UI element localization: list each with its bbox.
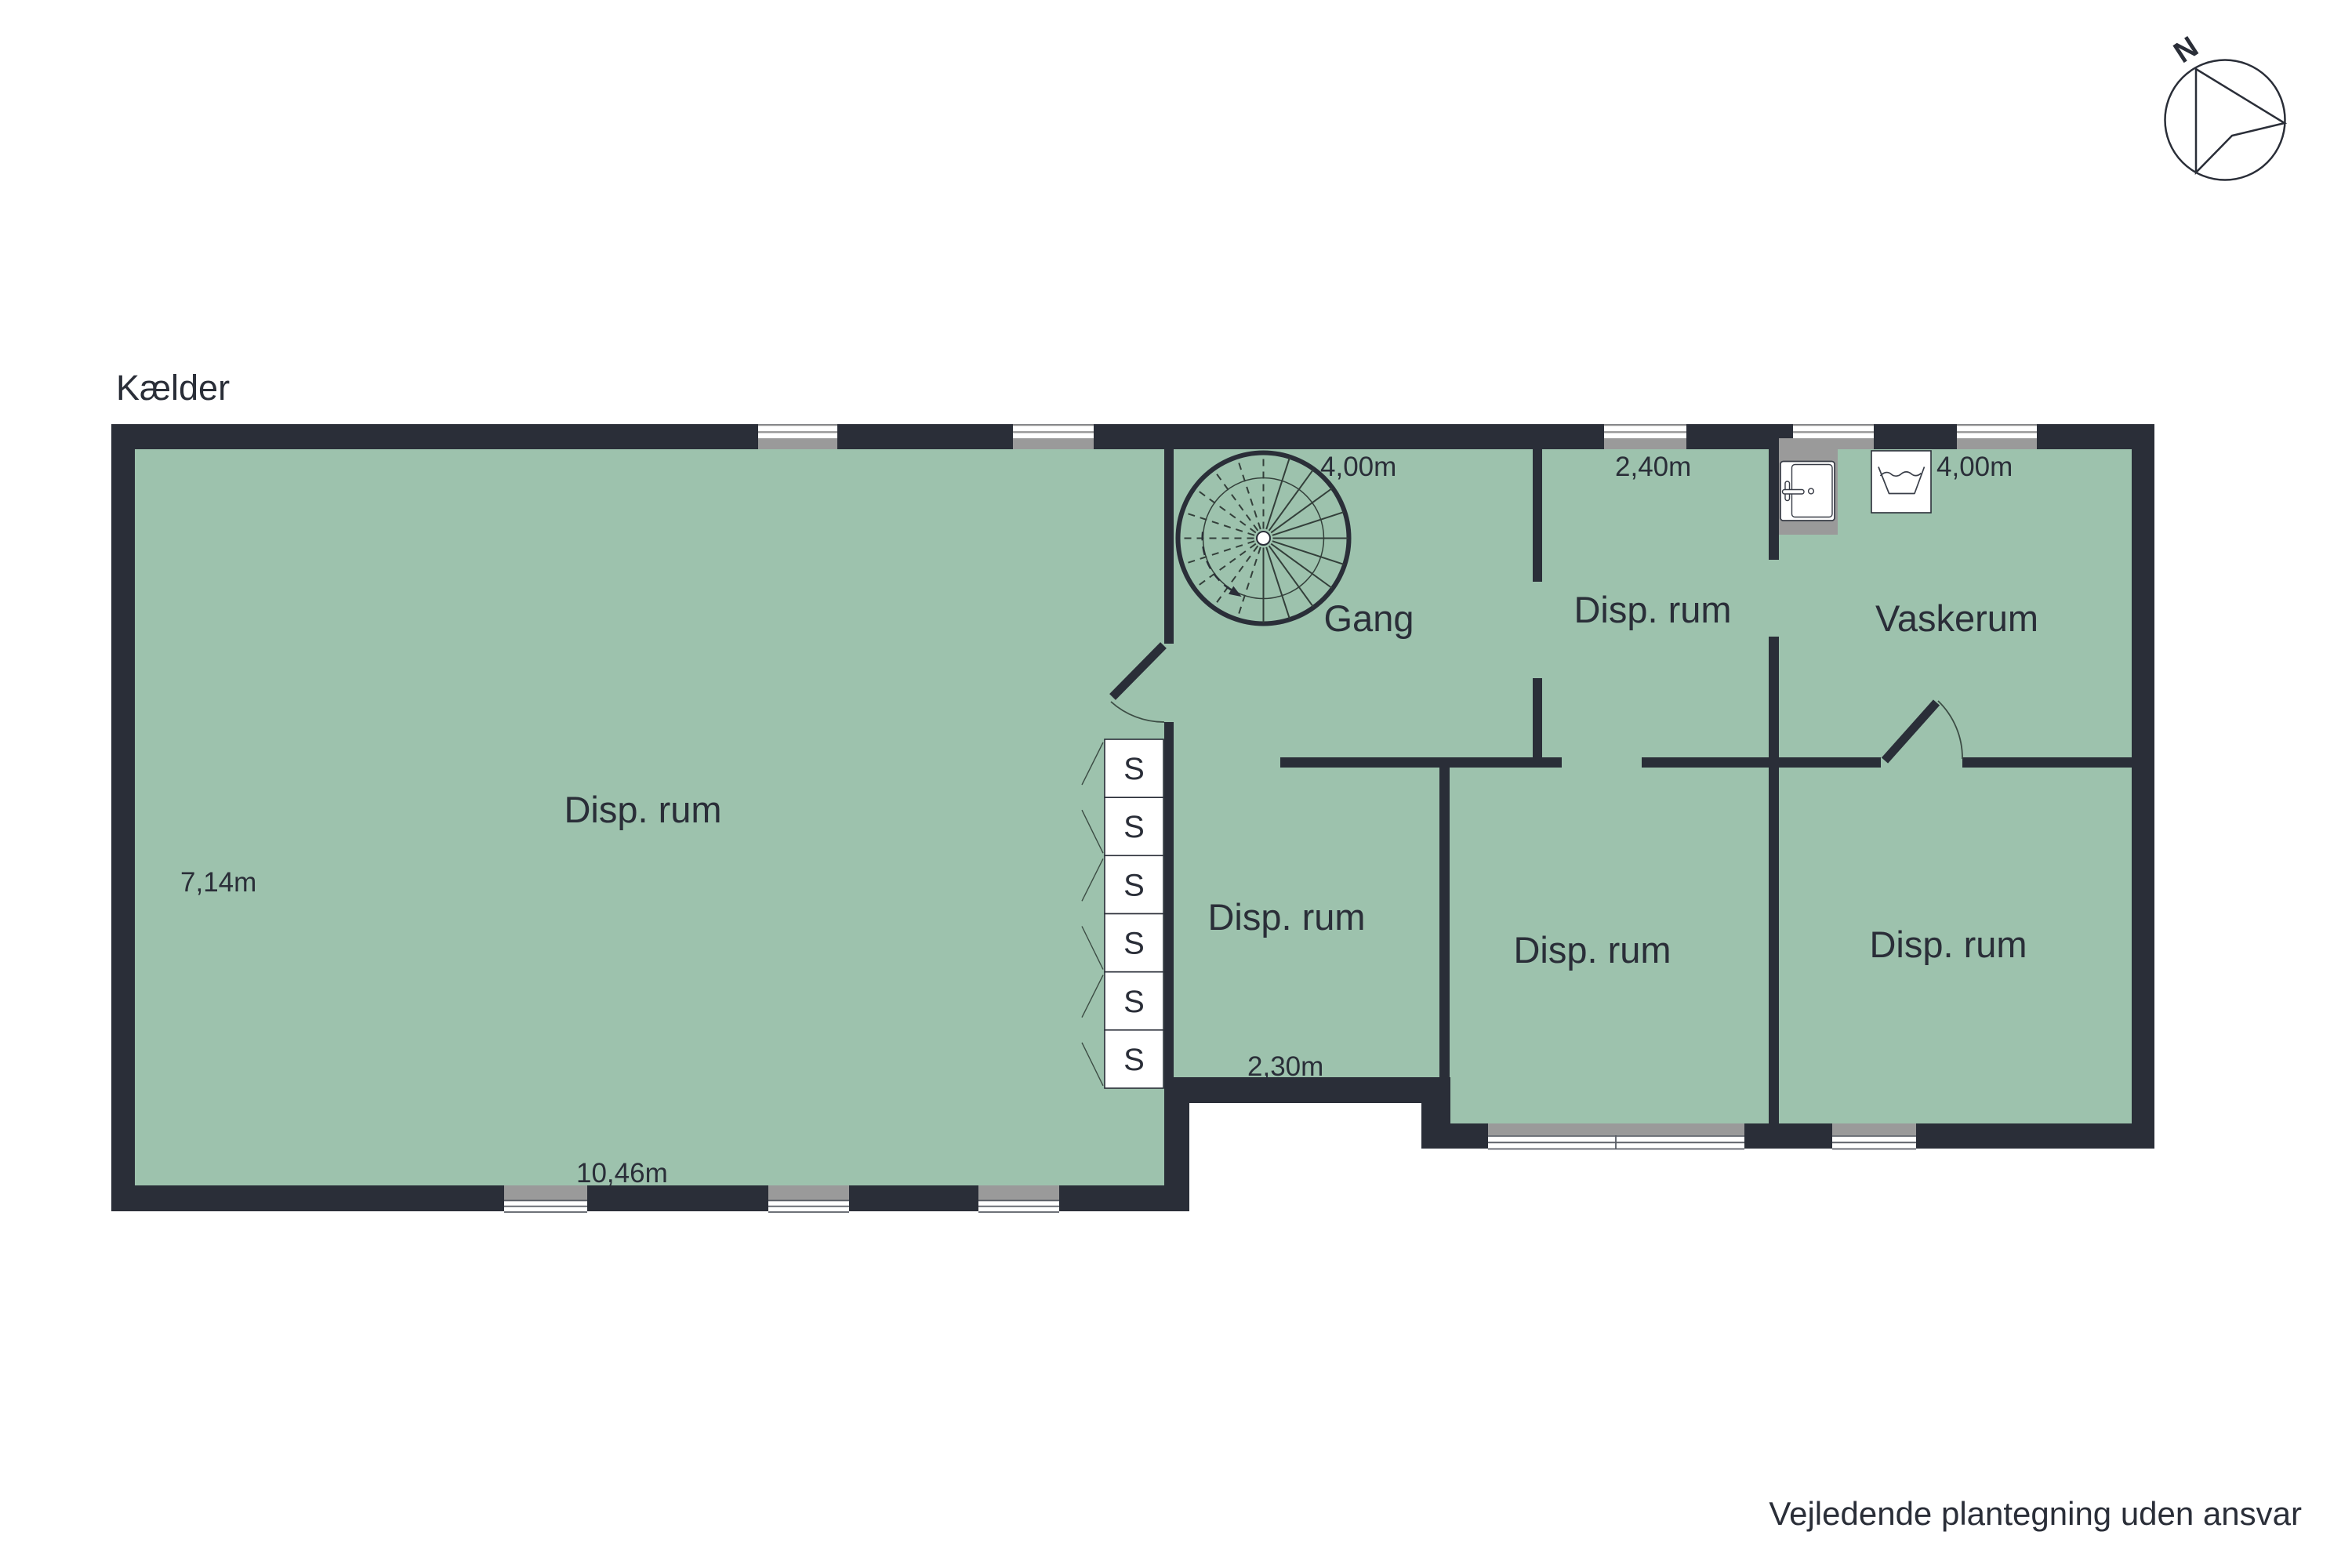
svg-text:2,40m: 2,40m xyxy=(1615,452,1691,482)
svg-text:7,14m: 7,14m xyxy=(180,867,256,898)
svg-text:Kælder: Kælder xyxy=(116,368,230,408)
svg-text:Disp. rum: Disp. rum xyxy=(1869,924,2027,965)
svg-text:S: S xyxy=(1123,752,1145,786)
svg-text:S: S xyxy=(1123,810,1145,844)
svg-text:Vejledende plantegning uden an: Vejledende plantegning uden ansvar xyxy=(1769,1495,2302,1532)
svg-text:S: S xyxy=(1123,927,1145,961)
svg-text:S: S xyxy=(1123,868,1145,902)
svg-text:Vaskerum: Vaskerum xyxy=(1875,597,2038,639)
svg-text:Disp. rum: Disp. rum xyxy=(1513,929,1671,971)
svg-text:2,30m: 2,30m xyxy=(1247,1051,1323,1082)
svg-text:4,00m: 4,00m xyxy=(1936,452,2013,482)
svg-text:10,46m: 10,46m xyxy=(576,1158,668,1189)
svg-text:4,00m: 4,00m xyxy=(1320,452,1396,482)
svg-text:S: S xyxy=(1123,985,1145,1019)
svg-text:Gang: Gang xyxy=(1324,597,1414,639)
svg-text:Disp. rum: Disp. rum xyxy=(564,789,721,830)
svg-text:Disp. rum: Disp. rum xyxy=(1573,589,1731,630)
svg-text:Disp. rum: Disp. rum xyxy=(1207,896,1365,938)
svg-text:S: S xyxy=(1123,1043,1145,1077)
